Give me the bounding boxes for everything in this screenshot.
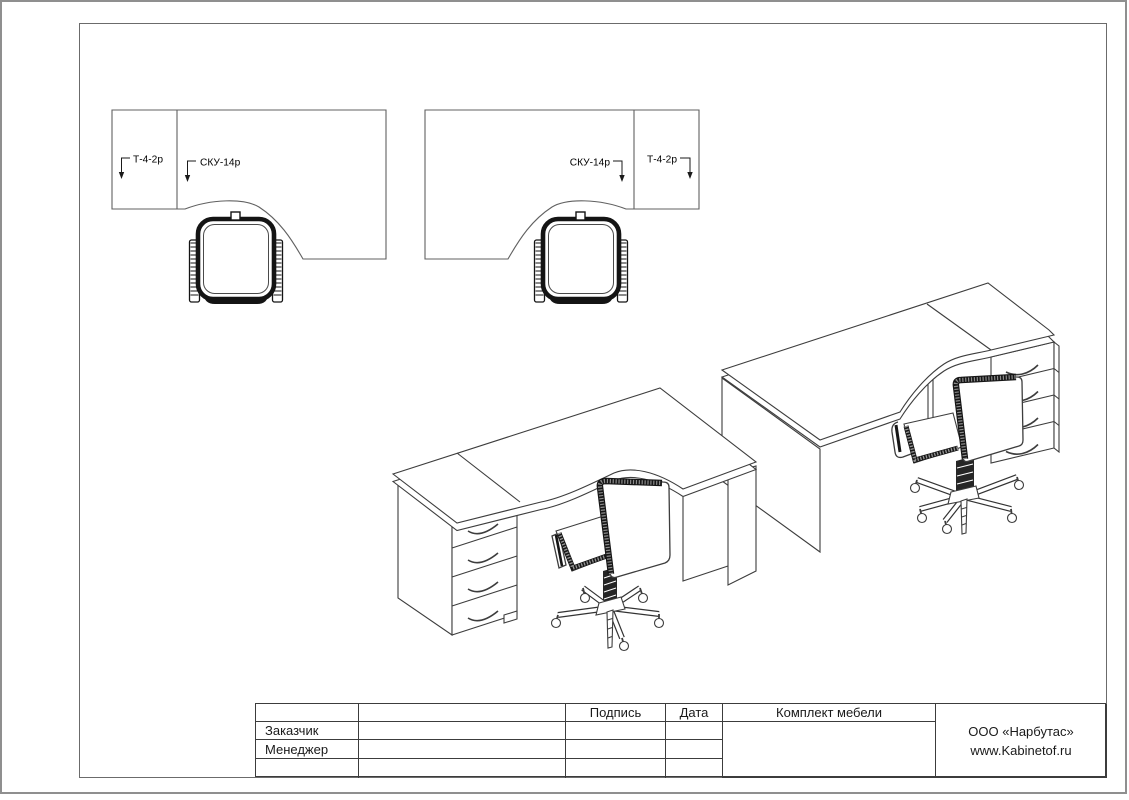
manager-signature-cell <box>566 740 666 759</box>
manager-row-label: Менеджер <box>256 740 359 759</box>
date-column-header: Дата <box>666 704 723 722</box>
furniture-drawing-canvas: Т-4-2р СКУ-14р СКУ-14р Т-4-2р <box>0 0 1129 800</box>
svg-text:СКУ-14р: СКУ-14р <box>570 158 611 169</box>
titleblock-cell-empty <box>359 704 566 722</box>
floor-plan-left: Т-4-2р СКУ-14р <box>112 110 386 302</box>
extra-value-cell <box>359 759 566 778</box>
drawing-sheet: { "plan_labels": { "left_pedestal": "Т-4… <box>0 0 1129 800</box>
chair-top-view-right <box>535 212 628 302</box>
extra-signature-cell <box>566 759 666 778</box>
chair-top-view-left <box>190 212 283 302</box>
company-name: ООО «Нарбутас» <box>968 722 1073 741</box>
svg-text:Т-4-2р: Т-4-2р <box>647 155 677 166</box>
svg-text:Т-4-2р: Т-4-2р <box>133 155 163 166</box>
iso-desk-left <box>393 388 756 651</box>
titleblock-cell-empty <box>256 704 359 722</box>
customer-signature-cell <box>566 722 666 740</box>
iso-desk-right <box>722 283 1059 552</box>
furniture-set-header: Комплект мебели <box>723 704 936 722</box>
company-info: ООО «Нарбутас» www.Kabinetof.ru <box>936 704 1107 778</box>
iso-chair-left <box>552 479 671 651</box>
signature-column-header: Подпись <box>566 704 666 722</box>
manager-value-cell <box>359 740 566 759</box>
title-block: Подпись Дата Комплект мебели ООО «Нарбут… <box>255 703 1106 777</box>
svg-text:СКУ-14р: СКУ-14р <box>200 158 241 169</box>
customer-row-label: Заказчик <box>256 722 359 740</box>
manager-date-cell <box>666 740 723 759</box>
customer-date-cell <box>666 722 723 740</box>
extra-row-label <box>256 759 359 778</box>
floor-plan-right: СКУ-14р Т-4-2р <box>425 110 699 302</box>
furniture-set-value-cell <box>723 722 936 778</box>
extra-date-cell <box>666 759 723 778</box>
customer-value-cell <box>359 722 566 740</box>
company-site: www.Kabinetof.ru <box>970 741 1071 760</box>
